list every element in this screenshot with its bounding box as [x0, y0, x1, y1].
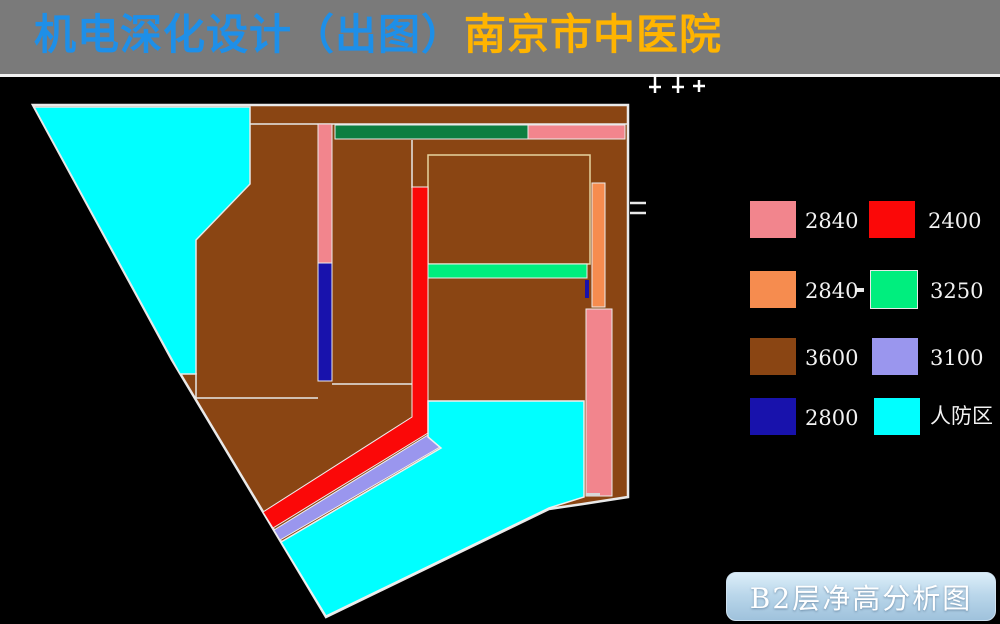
navy-sliver — [585, 280, 589, 298]
spring-green-bar-mid — [428, 264, 587, 278]
legend-label-2840-orange: 2840 — [805, 281, 858, 302]
legend-swatch-cyan — [874, 398, 920, 435]
navy-strip-vertical — [318, 263, 332, 381]
legend-label-civil-defense: 人防区 — [930, 406, 993, 427]
floor-plan-svg — [0, 0, 1000, 624]
legend-label-2400: 2400 — [928, 211, 981, 232]
legend-label-3100: 3100 — [930, 348, 983, 369]
right-edge-tick-marks — [630, 203, 646, 213]
dark-green-bar-top — [335, 125, 528, 139]
legend-swatch-periwinkle — [872, 338, 918, 375]
legend-swatch-spring-green — [871, 271, 917, 308]
legend-swatch-brown — [750, 338, 796, 375]
caption-badge: B2层净高分析图 — [726, 572, 996, 621]
plus-marks — [649, 75, 705, 93]
legend-swatch-orange — [750, 271, 796, 308]
legend-separator-dash — [857, 288, 864, 292]
legend-swatch-pink — [750, 201, 796, 238]
legend-label-2840-pink: 2840 — [805, 211, 858, 232]
caption-text: B2层净高分析图 — [750, 577, 972, 617]
legend-label-3250: 3250 — [930, 281, 983, 302]
pink-strip-lower-right — [586, 309, 612, 496]
legend-swatch-red — [869, 201, 915, 238]
legend-swatch-navy — [750, 398, 796, 435]
orange-strip-vertical — [592, 183, 605, 307]
legend-label-2800: 2800 — [805, 408, 858, 429]
tiny-annotation-mark — [586, 493, 600, 496]
pink-bar-top-right — [528, 125, 625, 139]
pink-strip-vertical — [318, 124, 332, 263]
legend-label-3600: 3600 — [805, 348, 858, 369]
slide: 机电深化设计（出图）南京市中医院 — [0, 0, 1000, 624]
